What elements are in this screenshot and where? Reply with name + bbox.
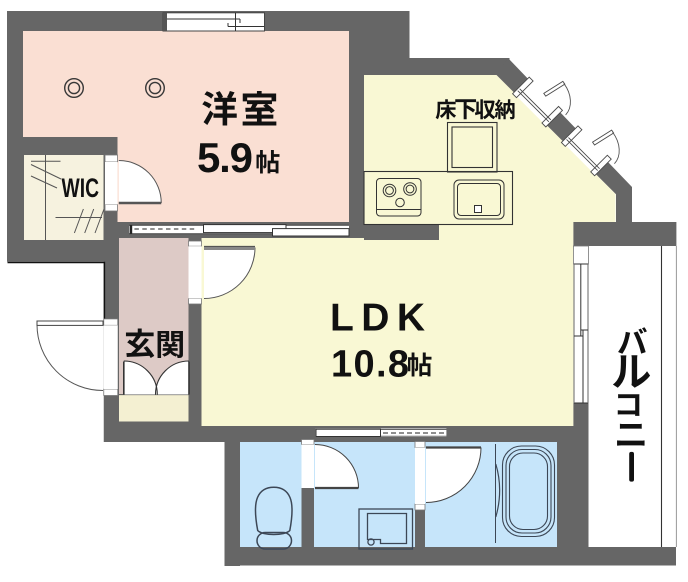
svg-text:10.8: 10.8 bbox=[331, 344, 409, 386]
svg-text:WIC: WIC bbox=[62, 173, 100, 203]
svg-text:5.9: 5.9 bbox=[197, 134, 253, 181]
svg-text:LDK: LDK bbox=[330, 297, 425, 340]
